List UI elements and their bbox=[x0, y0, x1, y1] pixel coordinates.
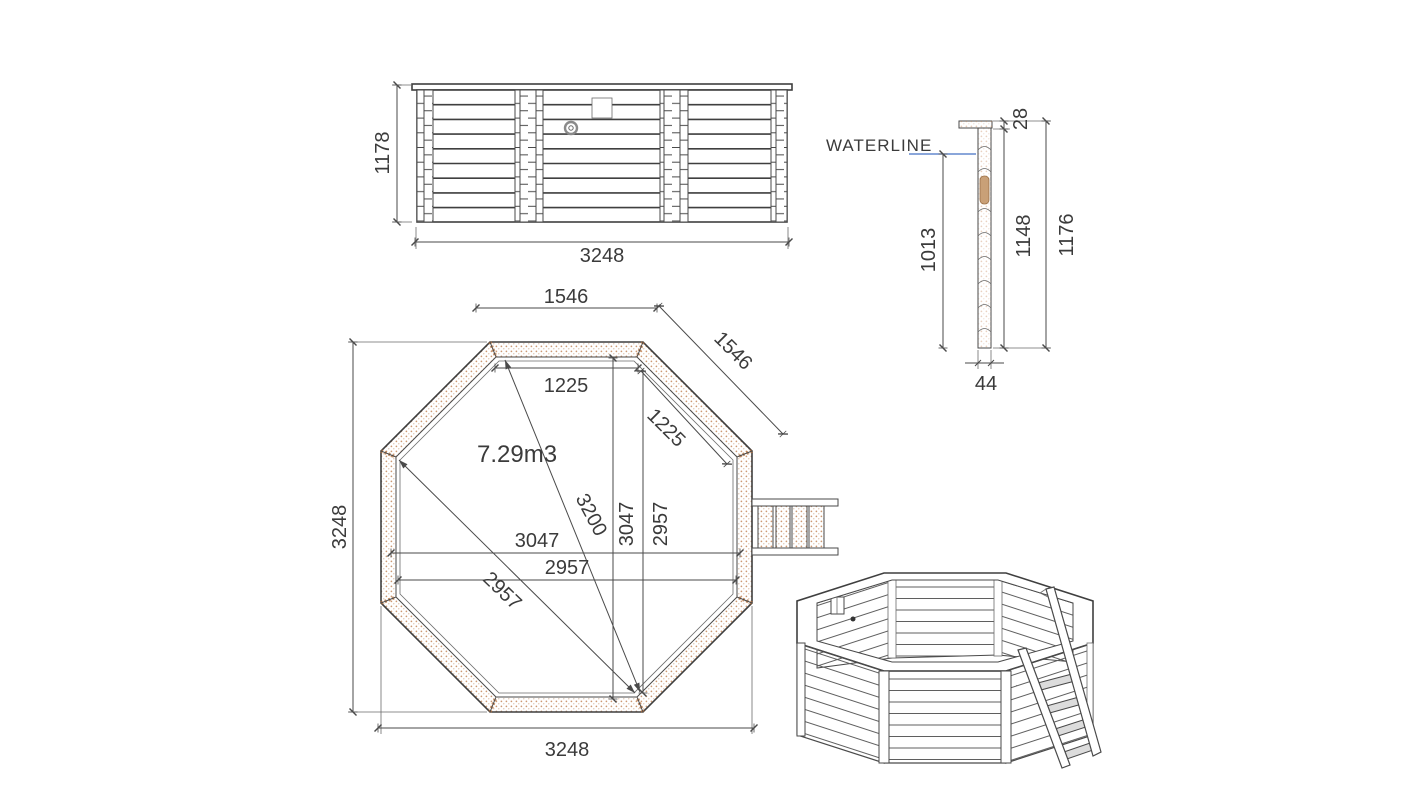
perspective-view bbox=[797, 573, 1101, 768]
ladder-step bbox=[758, 506, 773, 549]
dim-elevation-width: 3248 bbox=[580, 245, 625, 267]
dim-cap-thickness: 28 bbox=[1010, 108, 1032, 130]
inner-batten bbox=[888, 580, 896, 658]
ladder-step bbox=[776, 506, 790, 549]
corner-batten bbox=[797, 643, 805, 736]
dim-plan-overall-height: 3248 bbox=[329, 505, 351, 550]
dim-plan-diagonal-side: 1546 bbox=[709, 327, 756, 374]
dim-line-diag-1546 bbox=[659, 306, 783, 434]
ladder-rail bbox=[752, 548, 838, 555]
dim-line-diag-2957 bbox=[399, 460, 635, 693]
waterline-label: WATERLINE bbox=[826, 136, 932, 155]
coping-edge bbox=[412, 84, 792, 90]
outer-wall-front bbox=[884, 671, 1006, 763]
dim-waterline-height: 1013 bbox=[918, 228, 940, 273]
dim-plan-inner-diagonal-side: 1225 bbox=[642, 404, 689, 451]
dim-plan-width-3047: 3047 bbox=[515, 530, 560, 552]
dim-plan-long-diagonal: 3200 bbox=[571, 490, 611, 540]
technical-drawing-page: 1178 3248 WATERLINE 1013 28 1148 1176 44 bbox=[0, 0, 1422, 800]
plan-view: 1546 1546 1225 1225 7.29m3 3200 3047 295… bbox=[329, 286, 838, 761]
pool-technical-drawing: 1178 3248 WATERLINE 1013 28 1148 1176 44 bbox=[0, 0, 1422, 800]
dim-wall-thickness: 44 bbox=[975, 373, 997, 395]
dim-plan-height-2957: 2957 bbox=[650, 502, 672, 547]
corner-batten bbox=[879, 671, 889, 763]
ladder-step bbox=[792, 506, 807, 549]
wall-band bbox=[381, 342, 752, 712]
inner-wall bbox=[892, 580, 998, 658]
dim-wall-height: 1148 bbox=[1013, 214, 1035, 257]
dim-elevation-height: 1178 bbox=[372, 131, 394, 174]
inner-batten bbox=[994, 580, 1002, 656]
volume-label: 7.29m3 bbox=[477, 441, 557, 468]
ladder-rail bbox=[752, 499, 838, 506]
skimmer-icon bbox=[592, 98, 612, 118]
dim-plan-width-2957: 2957 bbox=[545, 557, 590, 579]
dim-plan-overall-width: 3248 bbox=[545, 739, 590, 761]
skimmer-3d-icon bbox=[831, 597, 844, 614]
dim-plan-top-side: 1546 bbox=[544, 286, 589, 308]
plan-ladder bbox=[752, 499, 838, 555]
dim-plan-inner-top: 1225 bbox=[544, 375, 589, 397]
ladder-step bbox=[809, 506, 824, 549]
dim-plan-diagonal-2957: 2957 bbox=[478, 568, 525, 615]
section-view: WATERLINE 1013 28 1148 1176 44 bbox=[826, 108, 1078, 395]
dim-total-height: 1176 bbox=[1056, 213, 1078, 256]
corner-batten bbox=[1001, 671, 1011, 763]
inner-octagon bbox=[396, 357, 737, 697]
elevation-view: 1178 3248 bbox=[372, 84, 792, 267]
inlet-3d-icon bbox=[851, 617, 856, 622]
dim-plan-height-3047: 3047 bbox=[616, 502, 638, 547]
